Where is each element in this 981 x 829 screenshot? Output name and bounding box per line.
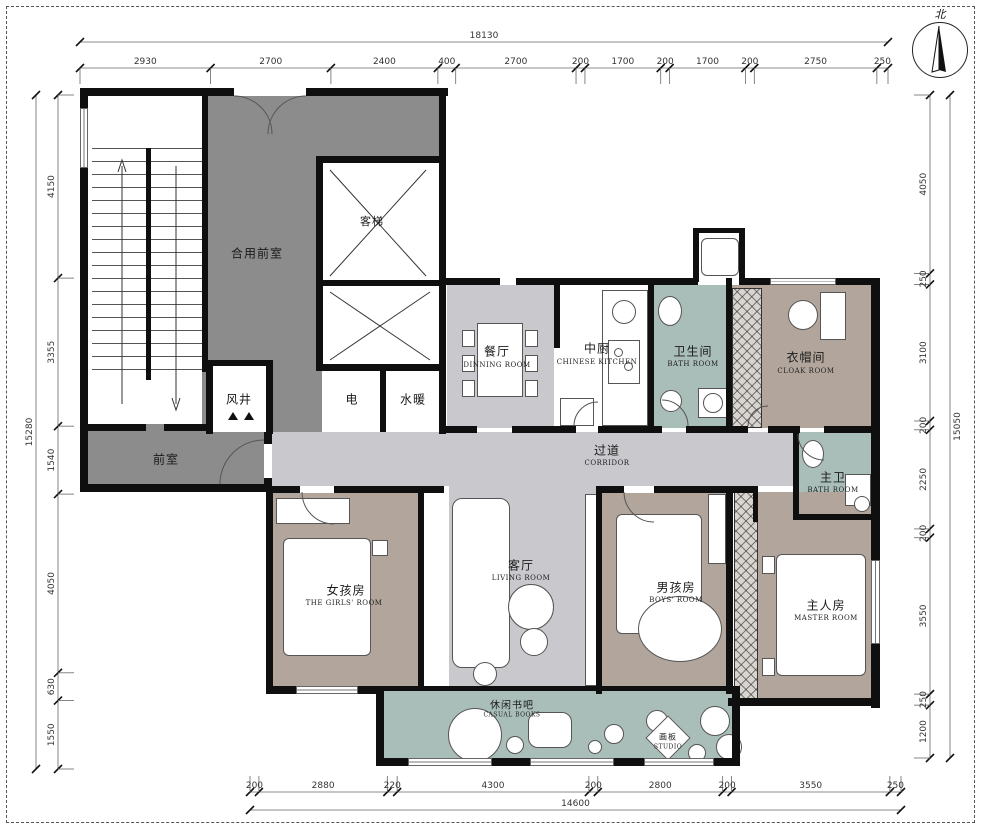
dimension-layer: 2930270024004002700200170020017002002750… <box>0 0 981 829</box>
svg-text:3100: 3100 <box>919 341 929 364</box>
svg-text:200: 200 <box>741 57 758 67</box>
svg-text:2400: 2400 <box>373 57 396 67</box>
svg-text:250: 250 <box>919 691 929 708</box>
svg-text:3355: 3355 <box>47 341 57 364</box>
svg-text:200: 200 <box>585 781 602 791</box>
svg-text:2700: 2700 <box>504 57 527 67</box>
svg-text:1540: 1540 <box>47 448 57 471</box>
svg-text:400: 400 <box>438 57 455 67</box>
svg-text:2930: 2930 <box>134 57 157 67</box>
svg-text:2880: 2880 <box>312 781 335 791</box>
compass-needle-icon <box>912 22 968 78</box>
compass-north-label: 北 <box>935 6 946 22</box>
svg-text:18130: 18130 <box>470 31 499 41</box>
svg-text:2700: 2700 <box>259 57 282 67</box>
svg-text:4150: 4150 <box>47 175 57 198</box>
svg-text:3550: 3550 <box>919 604 929 627</box>
svg-text:630: 630 <box>47 678 57 695</box>
svg-text:200: 200 <box>572 57 589 67</box>
svg-text:250: 250 <box>887 781 904 791</box>
svg-text:2750: 2750 <box>804 57 827 67</box>
svg-text:250: 250 <box>919 270 929 287</box>
svg-text:1200: 1200 <box>919 720 929 743</box>
svg-text:4300: 4300 <box>482 781 505 791</box>
svg-text:220: 220 <box>384 781 401 791</box>
svg-text:2250: 2250 <box>919 468 929 491</box>
svg-text:4050: 4050 <box>919 172 929 195</box>
svg-text:200: 200 <box>919 417 929 434</box>
svg-text:15280: 15280 <box>25 417 35 446</box>
svg-text:4050: 4050 <box>47 572 57 595</box>
svg-text:200: 200 <box>919 524 929 541</box>
svg-text:2800: 2800 <box>649 781 672 791</box>
north-compass <box>912 22 968 78</box>
svg-text:1550: 1550 <box>47 723 57 746</box>
svg-text:200: 200 <box>719 781 736 791</box>
svg-text:3550: 3550 <box>799 781 822 791</box>
floor-plan-canvas: 合用前室 客梯 风井 电 水暖 前室 餐厅 DINNING ROOM 中厨 CH… <box>0 0 981 829</box>
svg-text:250: 250 <box>874 57 891 67</box>
svg-text:200: 200 <box>246 781 263 791</box>
svg-text:14600: 14600 <box>561 799 590 809</box>
svg-text:200: 200 <box>657 57 674 67</box>
svg-text:15050: 15050 <box>953 412 963 441</box>
svg-text:1700: 1700 <box>611 57 634 67</box>
svg-text:1700: 1700 <box>696 57 719 67</box>
